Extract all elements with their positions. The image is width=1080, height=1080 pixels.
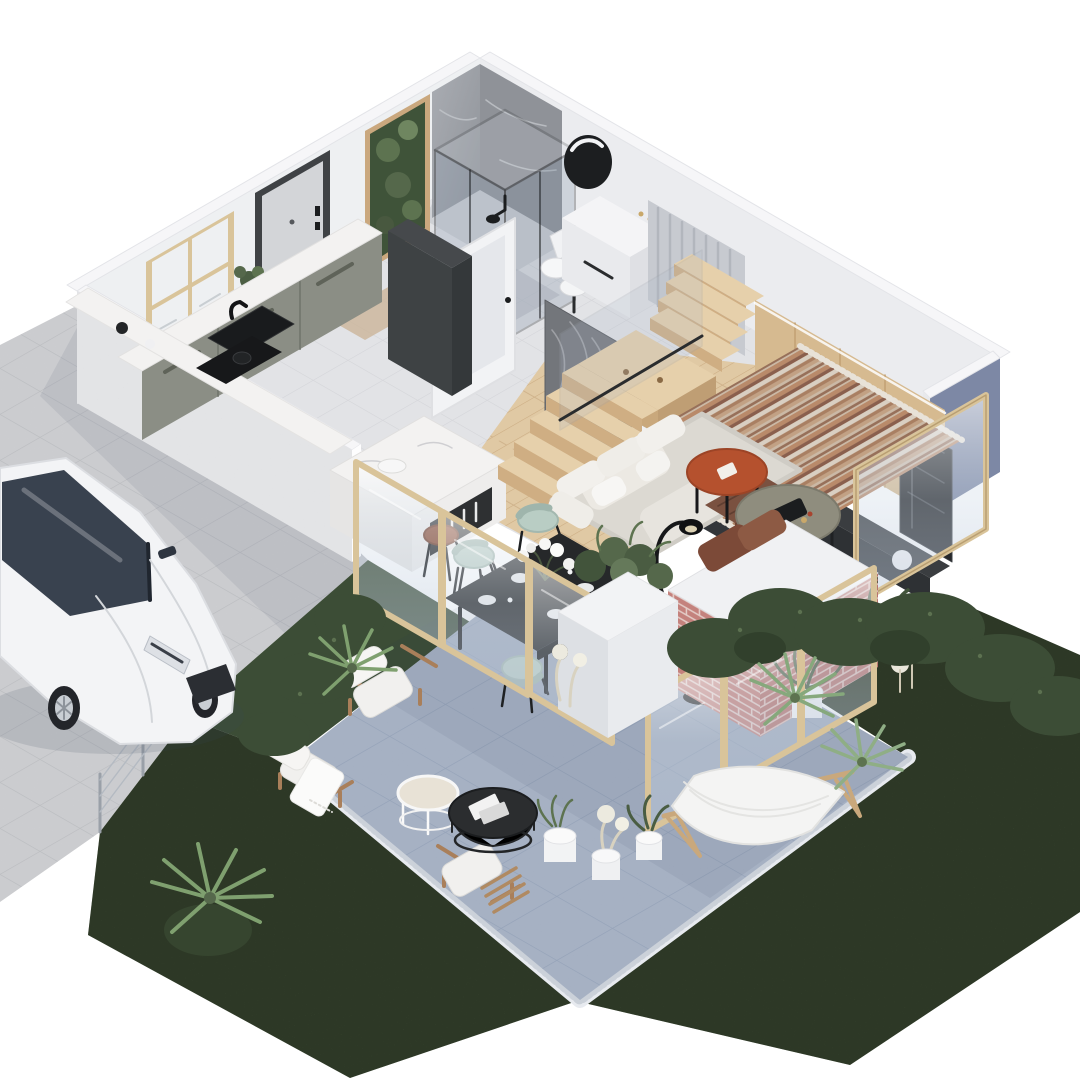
cooking-pot [233,352,251,364]
door-knob [505,297,511,303]
wheel [48,686,80,730]
scene-canvas [0,0,1080,1080]
isometric-apartment-render [0,0,1080,1080]
door-handle [315,206,320,216]
serving-tray [378,459,406,473]
round-mirror [564,135,612,189]
